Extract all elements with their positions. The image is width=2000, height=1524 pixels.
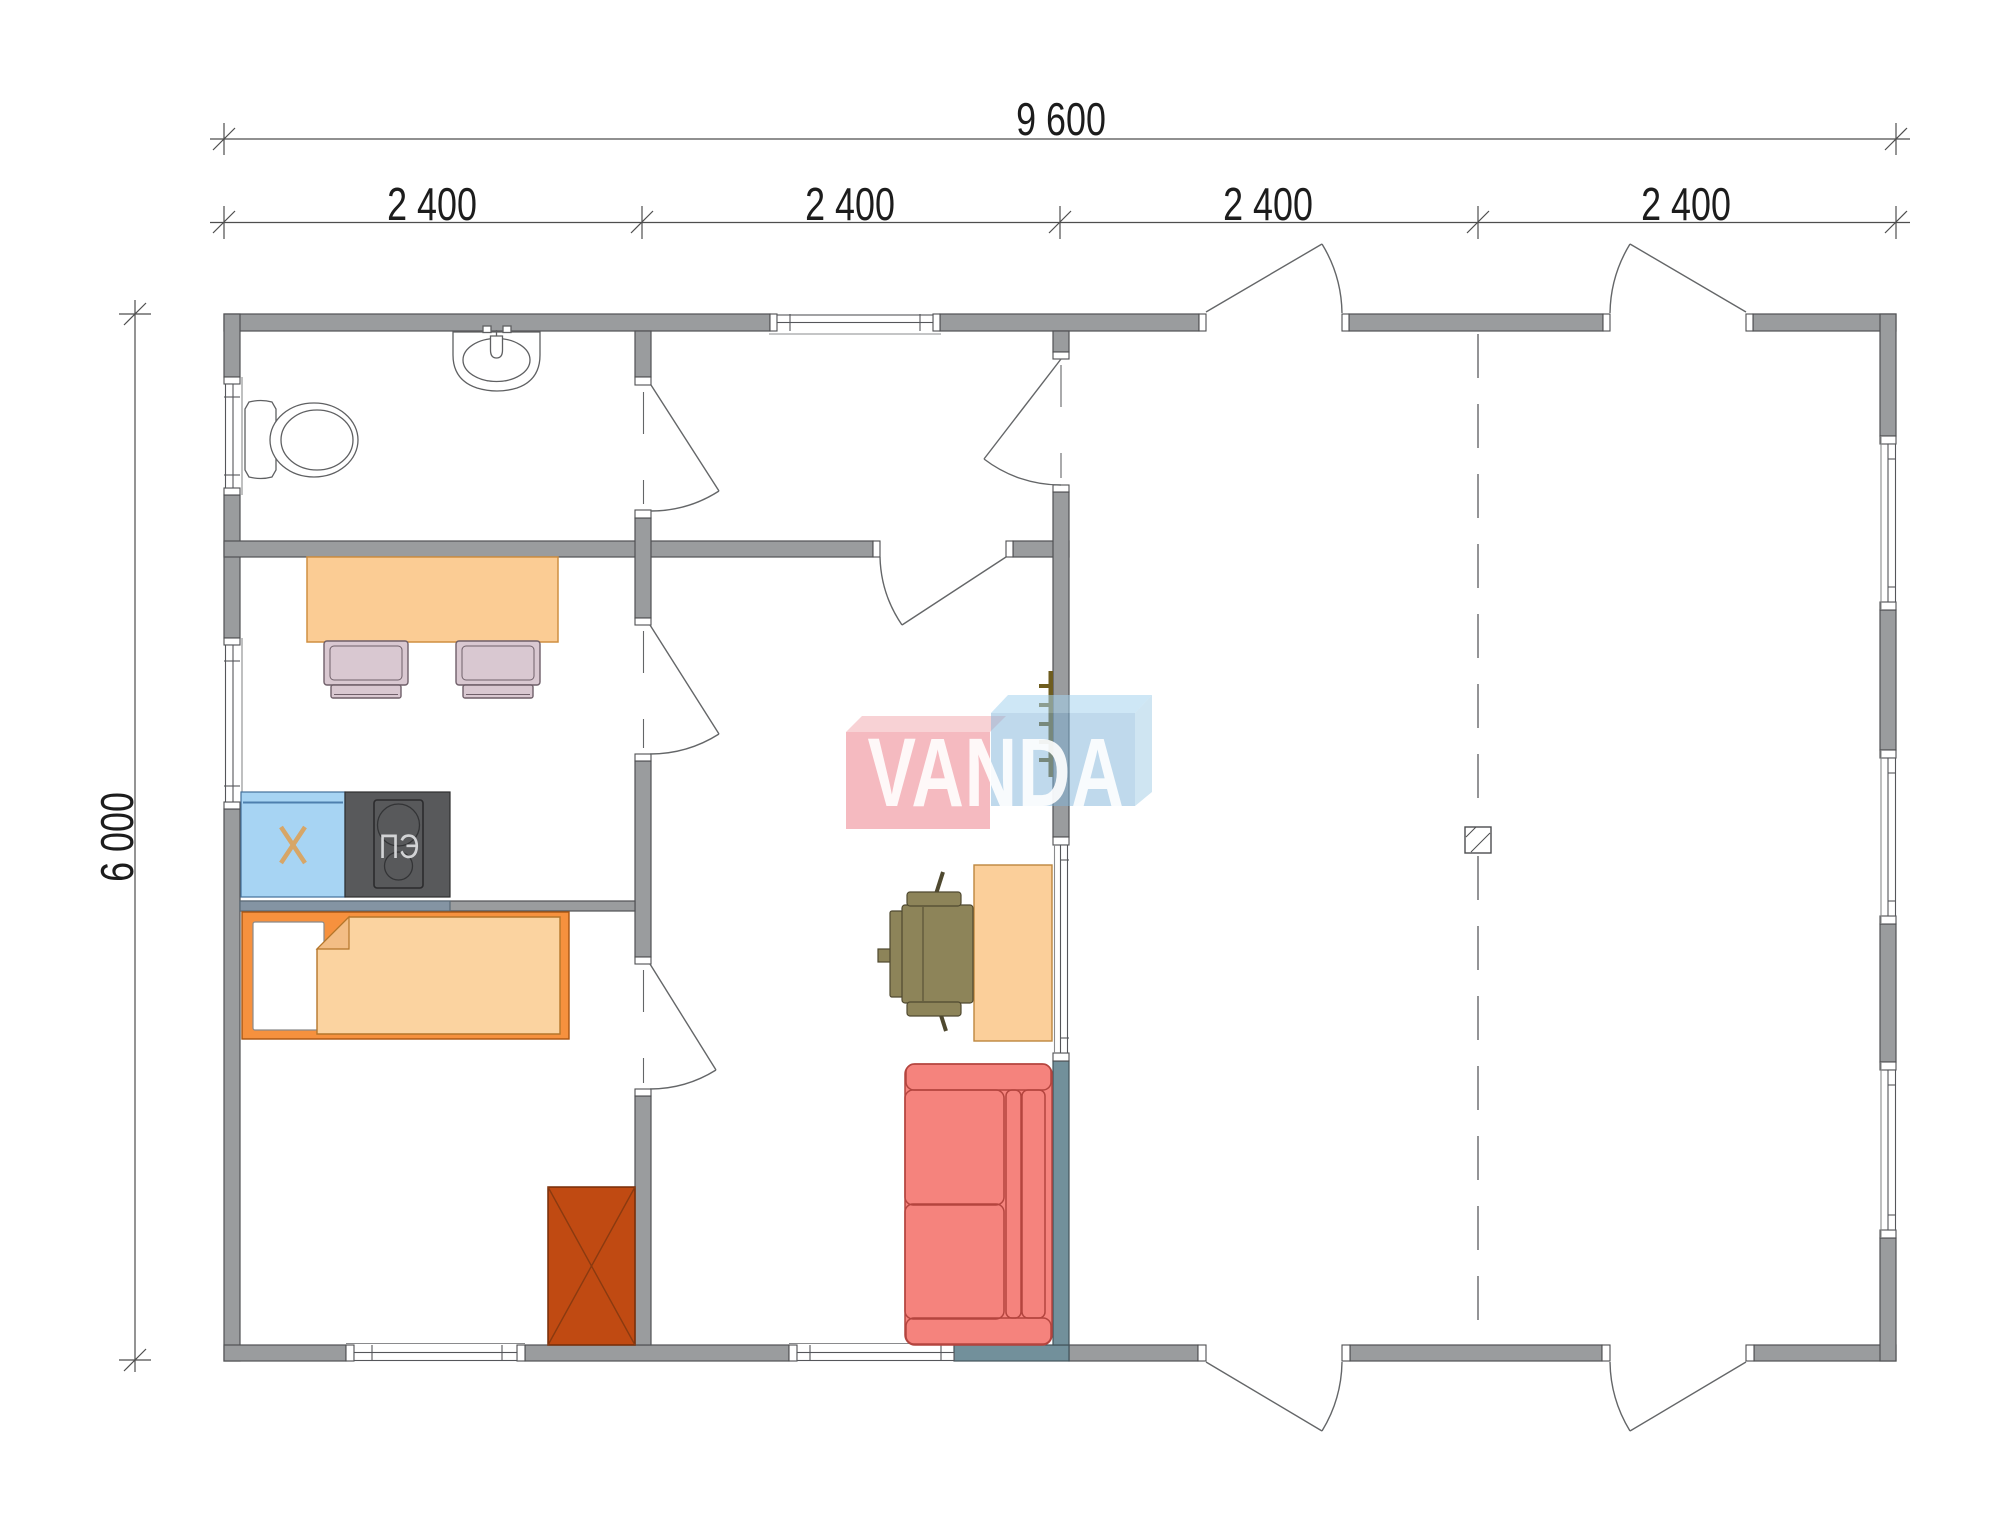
svg-text:2 400: 2 400 [387,179,477,230]
svg-text:VANDA: VANDA [868,719,1125,828]
svg-text:ПЭ: ПЭ [379,827,419,865]
svg-text:2 400: 2 400 [805,179,895,230]
svg-text:2 400: 2 400 [1641,179,1731,230]
svg-text:6 000: 6 000 [92,792,143,882]
svg-text:9 600: 9 600 [1016,94,1106,145]
svg-text:2 400: 2 400 [1223,179,1313,230]
